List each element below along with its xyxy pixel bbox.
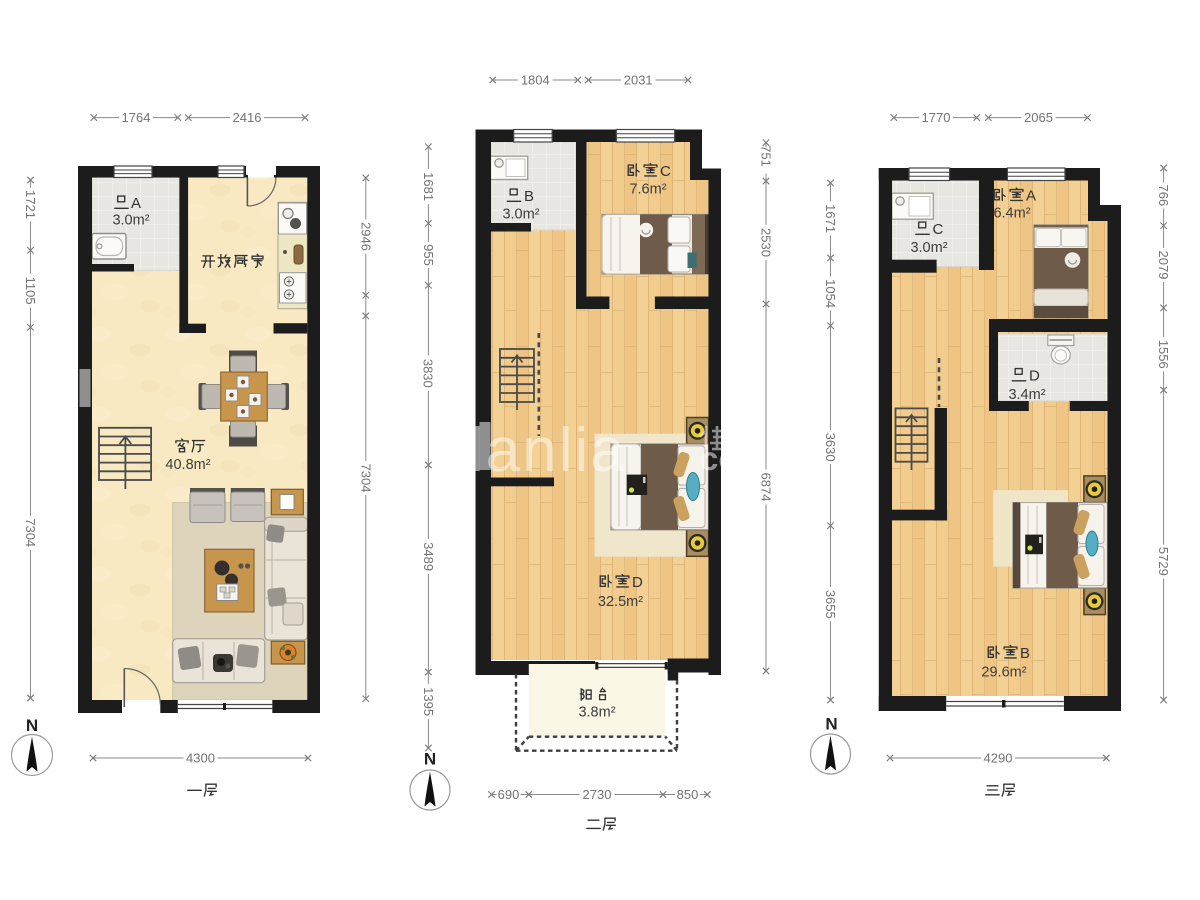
svg-text:5729: 5729 xyxy=(1156,547,1171,576)
svg-text:1105: 1105 xyxy=(23,277,38,305)
svg-text:40.8m²: 40.8m² xyxy=(165,457,210,473)
svg-text:850: 850 xyxy=(677,787,699,802)
svg-text:1770: 1770 xyxy=(922,110,951,125)
svg-text:7.6m²: 7.6m² xyxy=(629,182,666,198)
svg-text:1764: 1764 xyxy=(122,110,151,125)
svg-text:2065: 2065 xyxy=(1024,110,1053,125)
svg-text:lanlia: lanlia xyxy=(470,416,627,485)
svg-text:3630: 3630 xyxy=(823,433,838,462)
svg-text:766: 766 xyxy=(1156,185,1171,207)
svg-text:751: 751 xyxy=(759,145,774,167)
svg-text:2530: 2530 xyxy=(759,228,774,257)
svg-text:C: C xyxy=(660,163,671,180)
svg-text:3655: 3655 xyxy=(823,590,838,619)
svg-text:32.5m²: 32.5m² xyxy=(598,594,643,610)
svg-text:6874: 6874 xyxy=(759,473,774,502)
svg-text:N: N xyxy=(26,716,38,735)
svg-text:7304: 7304 xyxy=(358,464,373,493)
svg-text:3.4m²: 3.4m² xyxy=(1008,387,1045,403)
svg-text:1681: 1681 xyxy=(421,172,436,201)
svg-text:B: B xyxy=(1020,645,1030,662)
svg-text:6.4m²: 6.4m² xyxy=(993,206,1030,222)
svg-text:A: A xyxy=(1026,188,1036,205)
svg-text:29.6m²: 29.6m² xyxy=(981,665,1026,681)
svg-text:7304: 7304 xyxy=(23,518,38,547)
svg-text:955: 955 xyxy=(421,244,436,266)
svg-text:3.0m²: 3.0m² xyxy=(910,240,947,256)
svg-text:3489: 3489 xyxy=(421,542,436,571)
svg-text:B: B xyxy=(524,188,534,205)
svg-text:1395: 1395 xyxy=(421,687,436,716)
svg-text:co: co xyxy=(700,440,739,477)
svg-text:2416: 2416 xyxy=(233,110,262,125)
svg-text:3.0m²: 3.0m² xyxy=(502,207,539,223)
svg-text:3830: 3830 xyxy=(421,359,436,388)
svg-text:1721: 1721 xyxy=(23,190,38,219)
svg-text:4290: 4290 xyxy=(984,751,1013,766)
svg-text:2730: 2730 xyxy=(583,787,612,802)
svg-text:D: D xyxy=(1029,368,1040,385)
svg-text:N: N xyxy=(825,715,837,734)
svg-text:D: D xyxy=(632,574,643,591)
svg-text:2079: 2079 xyxy=(1156,251,1171,280)
svg-text:1054: 1054 xyxy=(823,279,838,308)
svg-text:2031: 2031 xyxy=(624,73,653,88)
svg-text:1556: 1556 xyxy=(1156,340,1171,369)
svg-text:3.8m²: 3.8m² xyxy=(578,705,615,721)
svg-text:690: 690 xyxy=(498,787,520,802)
svg-text:1804: 1804 xyxy=(521,73,550,88)
svg-text:A: A xyxy=(131,195,141,212)
svg-text:4300: 4300 xyxy=(186,751,215,766)
svg-text:2946: 2946 xyxy=(358,222,373,251)
svg-text:N: N xyxy=(424,750,436,769)
svg-text:3.0m²: 3.0m² xyxy=(112,213,149,229)
svg-text:1671: 1671 xyxy=(823,204,838,233)
svg-text:C: C xyxy=(933,221,944,238)
